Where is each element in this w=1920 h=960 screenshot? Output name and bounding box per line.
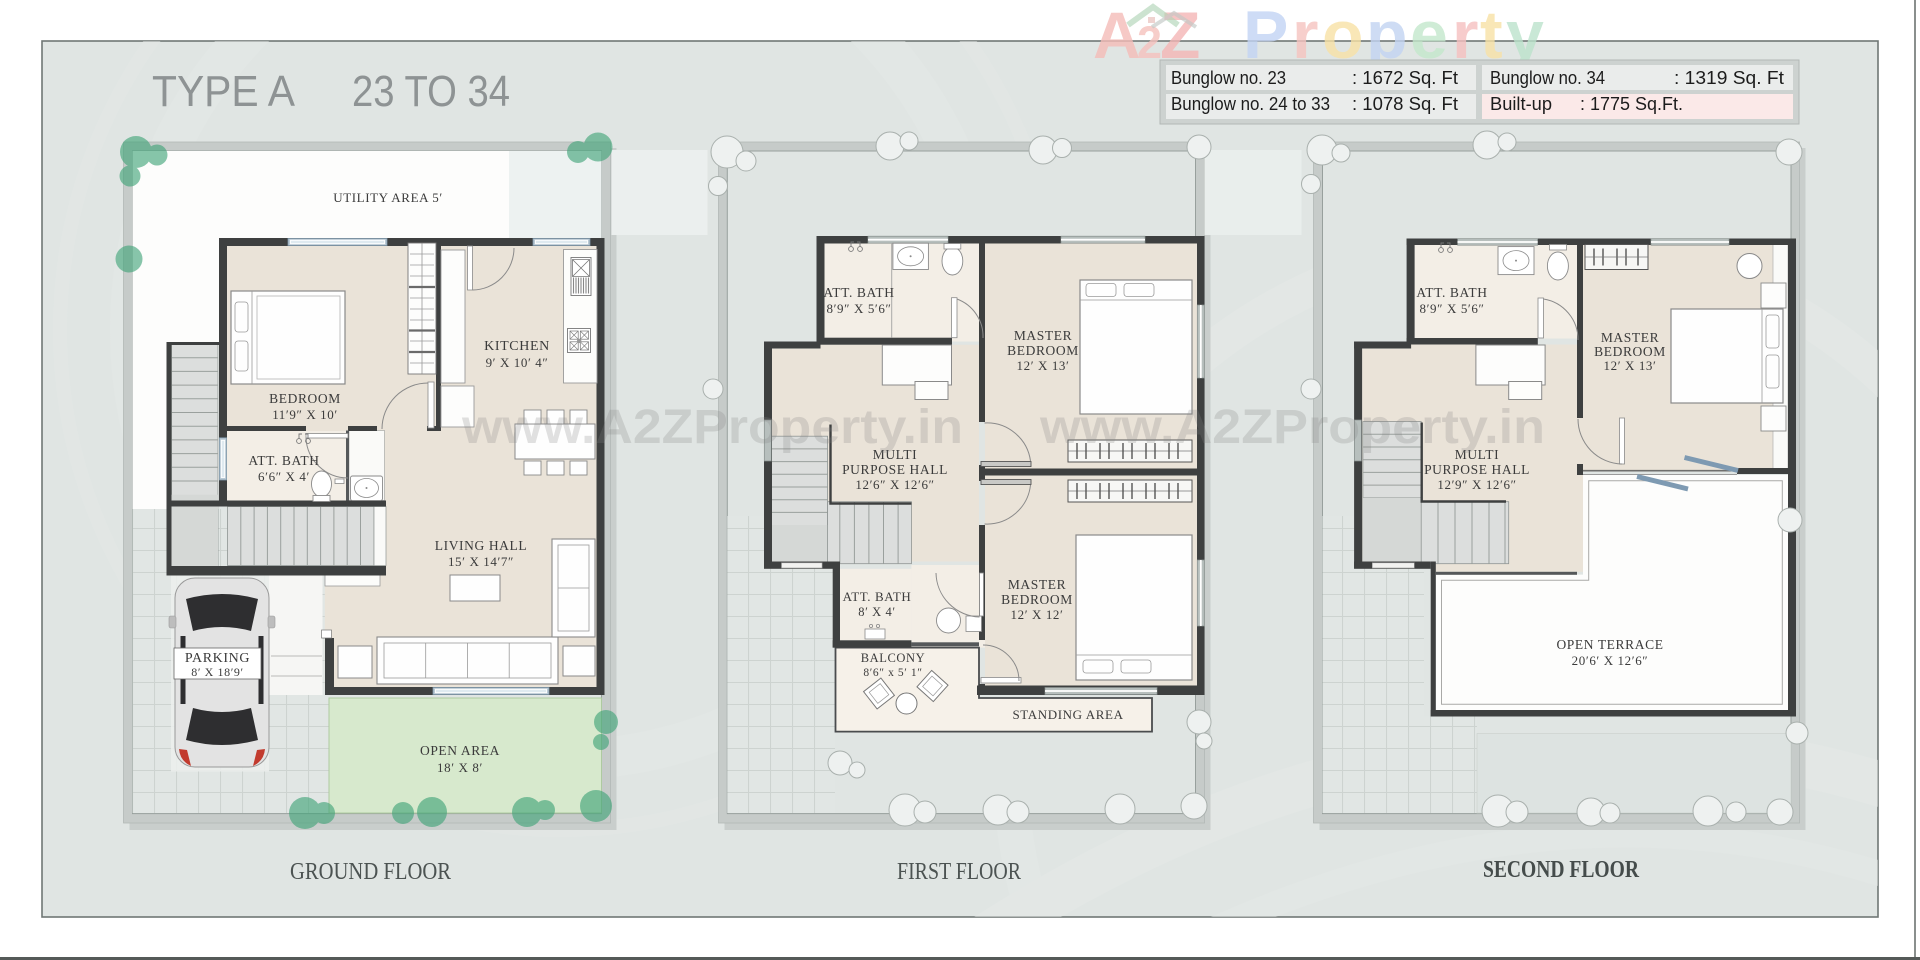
- svg-text:ATT. BATH: ATT. BATH: [1416, 285, 1487, 300]
- svg-text:12′ X 12′: 12′ X 12′: [1011, 607, 1064, 622]
- svg-text:23 TO 34: 23 TO 34: [352, 67, 510, 116]
- svg-text:12′9″ X 12′6″: 12′9″ X 12′6″: [1437, 477, 1516, 492]
- svg-text:BEDROOM: BEDROOM: [269, 391, 341, 406]
- svg-text:BEDROOM: BEDROOM: [1594, 344, 1666, 359]
- svg-text:8′ X 18′9′: 8′ X 18′9′: [191, 665, 244, 679]
- svg-text:12′ X 13′: 12′ X 13′: [1604, 358, 1657, 373]
- svg-text:MASTER: MASTER: [1601, 330, 1659, 345]
- svg-text:ATT. BATH: ATT. BATH: [823, 285, 894, 300]
- svg-text:www.A2ZProperty.in: www.A2ZProperty.in: [461, 401, 963, 454]
- svg-text:: 1775 Sq.Ft.: : 1775 Sq.Ft.: [1580, 93, 1683, 114]
- svg-text:8′9″ X 5′6″: 8′9″ X 5′6″: [826, 301, 891, 316]
- svg-text:MASTER: MASTER: [1014, 328, 1072, 343]
- svg-text:BEDROOM: BEDROOM: [1001, 592, 1073, 607]
- svg-text:STANDING AREA: STANDING AREA: [1012, 707, 1123, 722]
- svg-text:UTILITY AREA 5′: UTILITY AREA 5′: [333, 190, 443, 205]
- svg-text:Built-up: Built-up: [1490, 93, 1552, 114]
- svg-text:PURPOSE HALL: PURPOSE HALL: [1424, 462, 1530, 477]
- svg-text:www.A2ZProperty.in: www.A2ZProperty.in: [1039, 401, 1545, 454]
- svg-text:OPEN TERRACE: OPEN TERRACE: [1556, 637, 1663, 652]
- svg-text:12′6″ X 12′6″: 12′6″ X 12′6″: [855, 477, 934, 492]
- svg-text:GROUND FLOOR: GROUND FLOOR: [290, 859, 451, 885]
- svg-text:BEDROOM: BEDROOM: [1007, 343, 1079, 358]
- svg-text:PARKING: PARKING: [185, 651, 250, 666]
- svg-text:SECOND FLOOR: SECOND FLOOR: [1483, 856, 1639, 883]
- svg-text:11′9″ X 10′: 11′9″ X 10′: [272, 407, 338, 422]
- svg-text:: 1319 Sq. Ft: : 1319 Sq. Ft: [1674, 67, 1784, 88]
- svg-text:12′ X 13′: 12′ X 13′: [1017, 358, 1070, 373]
- svg-text:9′ X 10′ 4″: 9′ X 10′ 4″: [486, 355, 549, 370]
- svg-text:LIVING HALL: LIVING HALL: [435, 538, 527, 553]
- svg-text:8′6″ x 5′ 1″: 8′6″ x 5′ 1″: [863, 667, 922, 679]
- svg-text:18′ X 8′: 18′ X 8′: [437, 760, 483, 775]
- svg-text:15′ X 14′7″: 15′ X 14′7″: [448, 554, 514, 569]
- svg-text:PURPOSE HALL: PURPOSE HALL: [842, 462, 948, 477]
- svg-text:: 1078 Sq. Ft: : 1078 Sq. Ft: [1352, 93, 1458, 114]
- svg-text:A: A: [1093, 0, 1141, 72]
- svg-text:MASTER: MASTER: [1008, 577, 1066, 592]
- svg-text:: 1672 Sq. Ft: : 1672 Sq. Ft: [1352, 67, 1458, 88]
- svg-text:Bunglow no. 34: Bunglow no. 34: [1490, 67, 1605, 88]
- svg-text:OPEN AREA: OPEN AREA: [420, 743, 500, 758]
- svg-text:20′6′ X 12′6″: 20′6′ X 12′6″: [1572, 653, 1649, 668]
- svg-text:BALCONY: BALCONY: [861, 651, 926, 665]
- svg-text:8′9″ X 5′6″: 8′9″ X 5′6″: [1419, 301, 1484, 316]
- svg-text:Bunglow no. 24 to 33: Bunglow no. 24 to 33: [1171, 93, 1330, 114]
- svg-text:6′6″ X 4′: 6′6″ X 4′: [258, 469, 310, 484]
- svg-text:TYPE A: TYPE A: [152, 67, 296, 116]
- svg-text:ATT. BATH: ATT. BATH: [843, 589, 912, 604]
- svg-text:Bunglow no. 23: Bunglow no. 23: [1171, 67, 1286, 88]
- svg-text:KITCHEN: KITCHEN: [484, 339, 550, 354]
- svg-text:FIRST FLOOR: FIRST FLOOR: [897, 859, 1021, 885]
- svg-text:8′ X 4′: 8′ X 4′: [858, 605, 895, 619]
- svg-text:ATT. BATH: ATT. BATH: [248, 453, 319, 468]
